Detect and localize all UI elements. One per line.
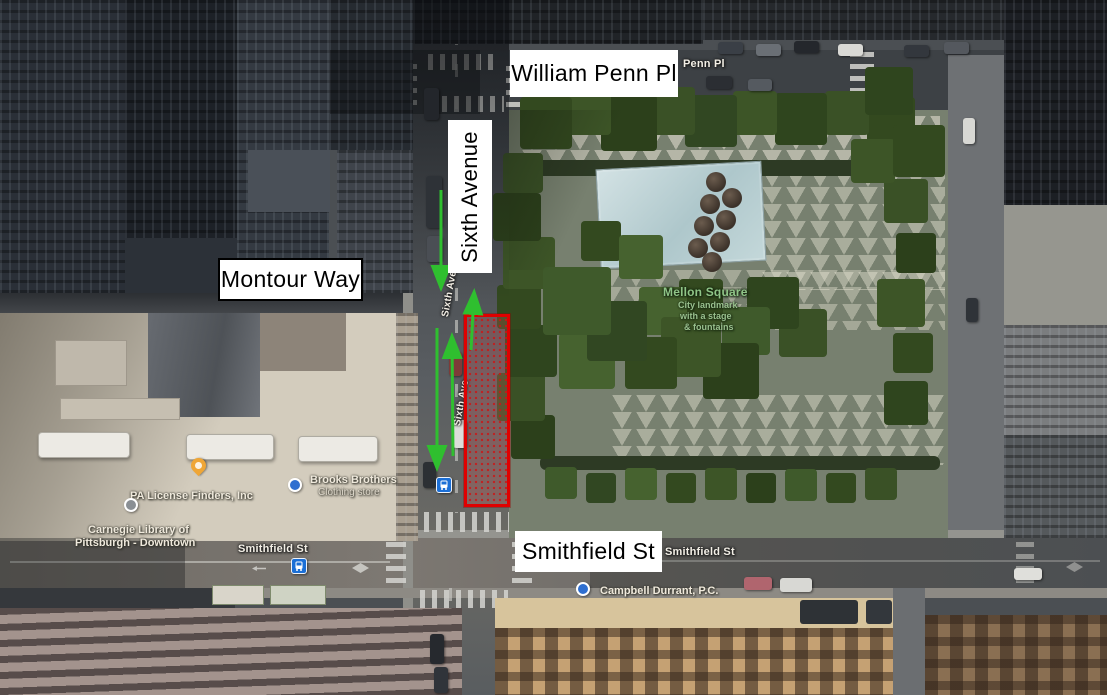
rooftop-detail: [55, 340, 127, 386]
aerial-map[interactable]: Penn Pl Smithfield St Smithfield St Sixt…: [0, 0, 1107, 695]
office-pin-icon[interactable]: [576, 582, 590, 596]
storefront-awning: [212, 585, 264, 605]
building: [413, 0, 703, 44]
park-label-desc: with a stage: [680, 311, 732, 321]
car: [427, 236, 442, 262]
building-facade: [925, 615, 1107, 695]
building: [125, 0, 237, 238]
poi-label-carnegie-line1[interactable]: Carnegie Library of: [88, 524, 189, 536]
callout-william-penn-pl: William Penn Pl: [510, 50, 678, 97]
car: [748, 79, 772, 91]
fountain-planter: [716, 210, 736, 230]
car: [794, 41, 819, 53]
street-name-smithfield-west[interactable]: Smithfield St: [238, 543, 308, 555]
storefront-awning: [270, 585, 326, 605]
fountain-planter: [702, 252, 722, 272]
rooftop-detail: [60, 398, 180, 420]
car: [838, 44, 863, 56]
street-name-smithfield-east[interactable]: Smithfield St: [665, 546, 735, 558]
car: [430, 634, 444, 664]
callout-text: Montour Way: [221, 266, 360, 293]
park-label-desc: & fountains: [684, 322, 734, 332]
crosswalk: [424, 512, 512, 532]
plaza-triangle-paving: [520, 116, 940, 164]
fountain-planter: [694, 216, 714, 236]
callout-sixth-avenue: Sixth Avenue: [448, 120, 492, 273]
crosswalk: [430, 96, 504, 112]
callout-text: Smithfield St: [522, 538, 655, 565]
car: [963, 118, 975, 144]
lane-line: [10, 561, 390, 563]
street-right-vertical: [948, 55, 1004, 538]
building: [1004, 205, 1107, 325]
library-pin-icon[interactable]: [124, 498, 138, 512]
building-facade: [0, 608, 462, 695]
building: [1004, 0, 1107, 205]
building: [1004, 325, 1107, 435]
plaza-triangle-paving: [610, 395, 945, 465]
poi-label-brooks-brothers[interactable]: Brooks Brothers: [310, 474, 397, 486]
building: [0, 0, 125, 293]
building: [1004, 435, 1107, 538]
car: [449, 352, 462, 376]
poi-label-pa-license-finders[interactable]: PA License Finders, Inc: [130, 490, 253, 502]
car: [718, 42, 743, 54]
car: [706, 76, 732, 89]
bus-stop-icon[interactable]: [291, 558, 307, 574]
bus-stop-icon[interactable]: [436, 477, 452, 493]
building-roof: [248, 150, 330, 212]
car: [744, 577, 772, 590]
crosswalk: [850, 52, 874, 100]
building-facade: [396, 313, 418, 541]
crosswalk: [428, 54, 498, 70]
car: [756, 44, 781, 56]
rooftop-structure: [260, 313, 346, 371]
car: [966, 298, 978, 322]
callout-text: William Penn Pl: [511, 60, 677, 87]
building: [329, 0, 413, 150]
rooftop-hvac: [38, 432, 130, 458]
fountain-planter: [722, 188, 742, 208]
building: [703, 0, 1043, 40]
callout-montour-way: Montour Way: [218, 258, 363, 301]
street-name-penn-pl[interactable]: Penn Pl: [683, 58, 725, 70]
callout-smithfield-st: Smithfield St: [515, 531, 662, 572]
shopping-pin-icon[interactable]: [288, 478, 302, 492]
park-label-mellon-square[interactable]: Mellon Square: [663, 285, 748, 299]
pin-dot: [194, 461, 204, 471]
street-trees: [0, 0, 2, 2]
car: [904, 45, 929, 57]
rooftop-hvac: [298, 436, 378, 462]
poi-label-carnegie-line2: Pittsburgh - Downtown: [75, 537, 195, 549]
car: [424, 88, 439, 120]
highlight-zone: [464, 314, 510, 507]
car: [423, 462, 436, 488]
building: [237, 0, 329, 262]
fountain-pool: [595, 161, 766, 270]
car: [434, 667, 448, 693]
building-facade: [495, 628, 895, 695]
car: [944, 42, 969, 54]
car: [1014, 568, 1042, 580]
crosswalk: [386, 542, 406, 586]
park-hedge: [540, 456, 940, 470]
street-gap: [893, 588, 925, 695]
rooftop-hvac: [186, 434, 274, 460]
van: [426, 176, 442, 228]
fountain-planter: [700, 194, 720, 214]
poi-label-brooks-category: Clothing store: [318, 487, 380, 498]
truck: [780, 578, 812, 592]
fountain-planter: [710, 232, 730, 252]
poi-label-campbell-durrant[interactable]: Campbell Durrant, P.C.: [600, 585, 718, 597]
park-label-desc: City landmark: [678, 300, 738, 310]
plaza-triangle-paving: [600, 270, 945, 330]
fountain-planter: [706, 172, 726, 192]
rooftop-hvac: [800, 600, 858, 624]
rooftop-hvac: [866, 600, 892, 624]
callout-text: Sixth Avenue: [457, 131, 483, 263]
